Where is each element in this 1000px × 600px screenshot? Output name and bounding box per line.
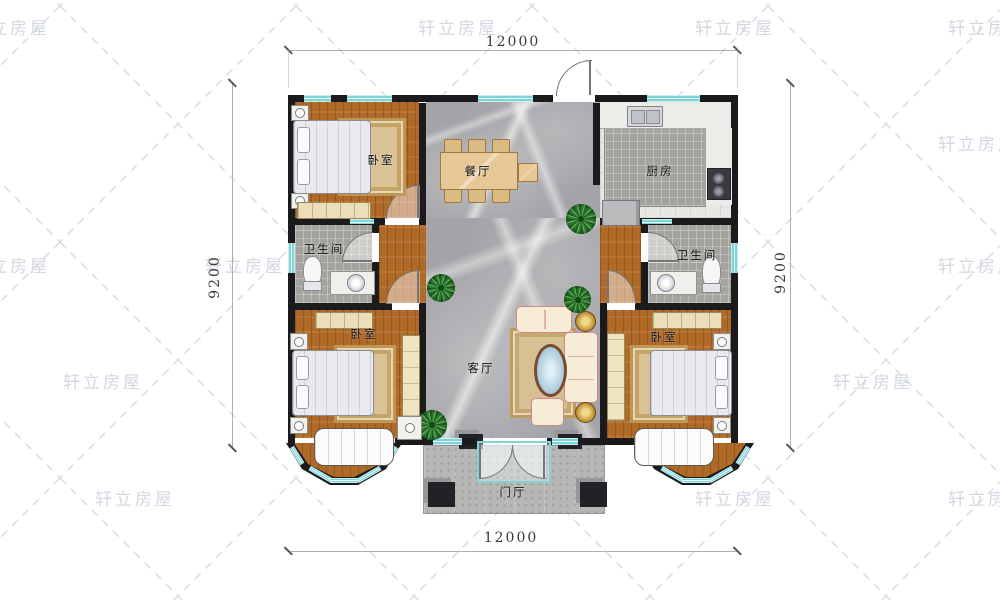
potted-plant: [427, 274, 455, 302]
toilet-tank: [702, 283, 721, 293]
dining-chair: [444, 188, 462, 203]
room-label-bath-right: 卫生间: [677, 247, 718, 263]
wall-kitchen-left: [593, 103, 600, 185]
bath-left-door-leaf: [342, 260, 372, 262]
nightstand: [291, 105, 309, 121]
bath-left-transom: [350, 219, 374, 224]
wall-stub: [419, 303, 426, 310]
toilet-tank: [303, 281, 322, 291]
side-table: [518, 163, 538, 182]
fridge: [602, 200, 640, 226]
watermark-text: 轩立房屋: [0, 14, 50, 39]
watermark-text: 轩立房屋: [938, 252, 1000, 277]
watermark-text: 轩立房屋: [95, 485, 175, 510]
sofa-loveseat: [516, 306, 572, 333]
dimension-top: 12000: [486, 34, 541, 50]
window: [288, 243, 295, 273]
porch-pillar: [428, 482, 455, 507]
wall-stub: [600, 303, 607, 310]
room-label-bath-left: 卫生间: [304, 241, 345, 257]
round-stool: [575, 402, 596, 423]
bedroom1-door-leaf: [417, 185, 419, 218]
bath-sink: [347, 274, 365, 292]
kitchen-counter-top: [600, 102, 731, 129]
dimension-line-left: [232, 82, 233, 448]
wardrobe: [402, 335, 420, 417]
watermark-text: 轩立房屋: [63, 368, 143, 393]
dimension-left: 9200: [207, 255, 223, 299]
window: [433, 438, 462, 445]
room-label-bedroom-bottom-right: 卧室: [651, 329, 678, 345]
wall-bath1-bottom: [288, 303, 392, 310]
room-label-foyer: 门厅: [500, 484, 527, 500]
bay-chaise: [314, 428, 394, 466]
wardrobe: [607, 333, 625, 421]
room-label-bedroom-bottom-left: 卧室: [351, 326, 378, 342]
potted-plant: [564, 286, 591, 313]
wall-bed3-left: [600, 310, 607, 445]
watermark-text: 轩立房屋: [695, 485, 775, 510]
sofa-main: [564, 332, 598, 403]
wall-bath1-right-a: [372, 225, 379, 233]
wall-bath2-left-a: [641, 225, 648, 233]
room-label-kitchen: 厨房: [647, 163, 674, 179]
bath-sink: [657, 274, 675, 292]
dining-chair: [492, 188, 510, 203]
dimension-right: 9200: [773, 250, 789, 294]
room-label-bedroom-top-left: 卧室: [368, 152, 395, 168]
dining-chair: [468, 188, 486, 203]
entrance-door-left-leaf: [479, 445, 481, 478]
dresser: [652, 312, 722, 329]
window: [552, 438, 578, 445]
floor-plan-canvas: 轩立房屋轩立房屋轩立房屋轩立房屋轩立房屋轩立房屋轩立房屋轩立房屋轩立房屋轩立房屋…: [0, 0, 1000, 600]
back-door-leaf: [589, 60, 591, 95]
wall-bath2-bottom: [635, 303, 738, 310]
watermark-text: 轩立房屋: [948, 485, 1000, 510]
porch-pillar: [580, 482, 607, 507]
room-label-dining: 餐厅: [465, 163, 492, 179]
watermark-text: 轩立房屋: [0, 252, 50, 277]
dresser: [297, 202, 371, 219]
bath-right-door-leaf: [648, 260, 678, 262]
kitchen-sink: [627, 106, 663, 127]
entrance-door-right-leaf: [543, 445, 545, 478]
stove: [707, 168, 731, 200]
watermark-text: 轩立房屋: [833, 368, 913, 393]
window: [647, 95, 700, 102]
dimension-line-bottom: [288, 551, 738, 552]
window: [731, 243, 738, 273]
back-door-opening: [553, 95, 595, 102]
bedroom3-door-leaf: [607, 270, 609, 303]
bed: [292, 350, 374, 416]
nightstand: [290, 333, 308, 350]
potted-plant: [566, 204, 596, 234]
bath-right-transom: [642, 219, 672, 224]
coffee-table: [534, 344, 567, 397]
bed: [650, 350, 732, 416]
nightstand: [290, 417, 308, 434]
room-label-living: 客厅: [468, 360, 495, 376]
watermark-text: 轩立房屋: [938, 130, 1000, 155]
bay-chaise: [634, 428, 714, 466]
bedroom2-door-leaf: [417, 270, 419, 303]
cabinet: [397, 416, 422, 440]
nightstand: [713, 333, 731, 350]
dimension-bottom: 12000: [484, 530, 539, 546]
watermark-text: 轩立房屋: [695, 14, 775, 39]
bed: [293, 120, 371, 194]
armchair: [531, 398, 564, 426]
watermark-text: 轩立房屋: [948, 14, 1000, 39]
round-stool: [575, 311, 596, 332]
window: [347, 95, 392, 102]
window: [478, 95, 533, 102]
window: [304, 95, 331, 102]
nightstand: [713, 417, 731, 434]
dimension-line-right: [790, 82, 791, 448]
wall-bed1-right: [419, 103, 426, 225]
dimension-line-top: [288, 50, 738, 51]
